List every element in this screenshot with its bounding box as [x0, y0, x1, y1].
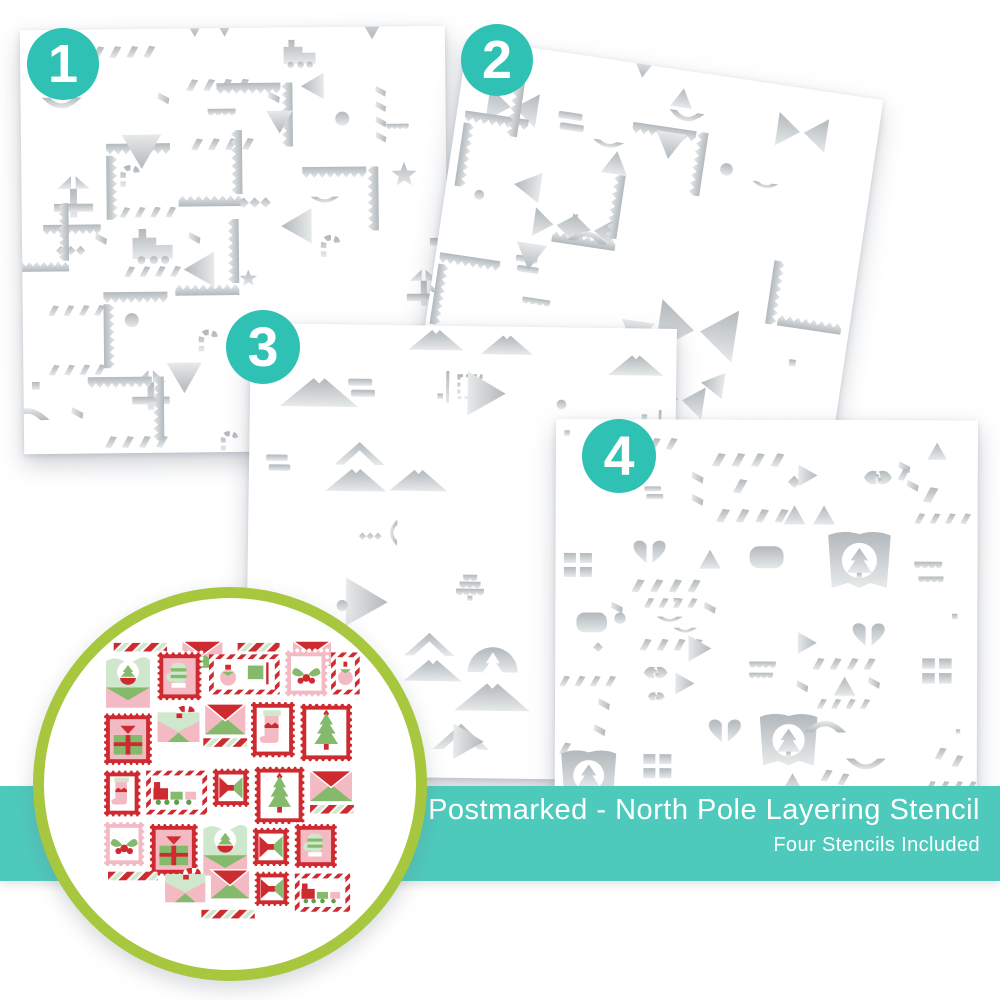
banner-subtitle: Four Stencils Included	[773, 834, 980, 857]
finished-pattern-preview	[33, 587, 427, 981]
sheet-number-badge-2: 2	[461, 24, 533, 96]
sheet-number-badge-4: 4	[582, 419, 656, 493]
banner-title: Postmarked - North Pole Layering Stencil	[428, 794, 980, 827]
sheet-number-badge-1: 1	[27, 28, 99, 100]
product-image: 1234 Postmarked - North Pole Layering St…	[0, 0, 1000, 1000]
sheet-number-badge-3: 3	[226, 310, 300, 384]
stamp-collage-art	[87, 641, 373, 927]
